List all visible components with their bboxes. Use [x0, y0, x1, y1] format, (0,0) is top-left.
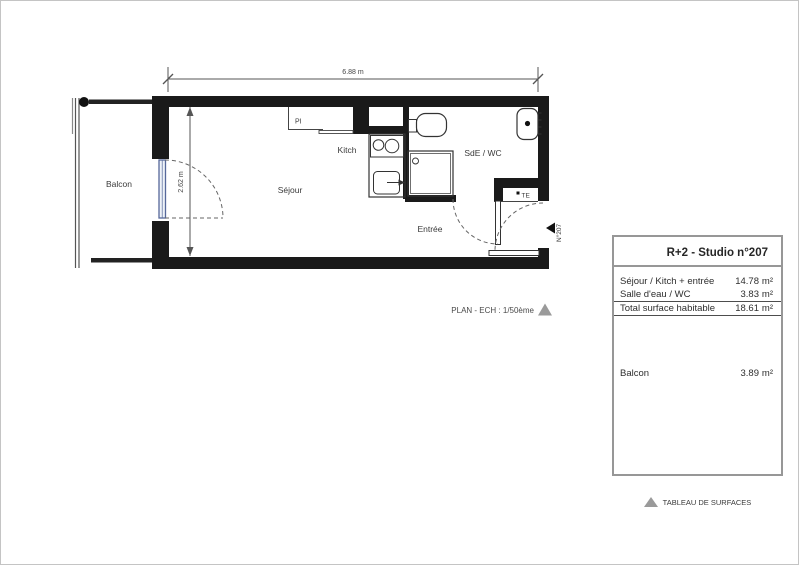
burner-small	[373, 140, 384, 151]
wall-left-upper	[152, 96, 169, 159]
wall-shaft-stub	[353, 107, 369, 134]
row-value: 18.61	[735, 303, 759, 314]
table-row-balcony: Balcon 3.89 m²	[614, 367, 781, 380]
wall-bottom	[152, 257, 549, 269]
row-unit: m²	[759, 276, 773, 287]
room-label-entree: Entrée	[417, 224, 442, 234]
room-label-sde-wc: SdE / WC	[464, 148, 501, 158]
entrance-door-swing-arc	[495, 203, 543, 251]
row-label: Total surface habitable	[620, 303, 735, 314]
row-unit: m²	[759, 289, 773, 300]
row-value: 3.89	[741, 368, 760, 379]
room-label-kitch: Kitch	[338, 145, 357, 155]
sde-door-swing-arc	[453, 199, 498, 244]
dim-width-label: 6.88 m	[342, 69, 364, 76]
sde-door-leaf	[496, 201, 501, 245]
page: 6.88 m 2.62 m PI	[0, 0, 799, 565]
table-rule-below-total	[614, 315, 781, 316]
dim-arrow-down	[187, 247, 194, 256]
te-label: TE	[522, 193, 531, 200]
balcony-rail-bottom	[91, 258, 152, 263]
washbasin-drain	[525, 121, 530, 126]
table-row: Séjour / Kitch + entrée 14.78 m²	[614, 275, 781, 288]
te-marker	[517, 192, 520, 195]
table-caption-triangle-icon	[644, 497, 658, 507]
kitchen-unit	[369, 134, 405, 197]
surface-table: R+2 - Studio n°207 Séjour / Kitch + entr…	[612, 235, 783, 476]
row-label: Balcon	[620, 368, 741, 379]
surface-table-title: R+2 - Studio n°207	[614, 237, 781, 267]
table-row-total: Total surface habitable 18.61 m²	[614, 302, 781, 315]
surface-table-rows: Séjour / Kitch + entrée 14.78 m² Salle d…	[614, 267, 781, 380]
plan-scale-caption: PLAN - ECH : 1/50ème	[451, 306, 534, 315]
surface-table-caption: TABLEAU DE SURFACES	[612, 497, 783, 507]
plan-caption-triangle-icon	[538, 304, 552, 316]
table-row: Salle d'eau / WC 3.83 m²	[614, 288, 781, 301]
row-value: 3.83	[741, 289, 760, 300]
entrance-arrow-icon	[546, 223, 555, 234]
room-label-balcon: Balcon	[106, 179, 132, 189]
pi-sliding-door	[319, 131, 353, 134]
wall-right-corner	[538, 248, 549, 269]
row-value: 14.78	[735, 276, 759, 287]
window-swing-arc	[165, 160, 223, 218]
balcony-post	[79, 97, 89, 107]
balcony-window	[159, 160, 223, 218]
shower-drain	[413, 158, 419, 164]
doors	[453, 199, 543, 256]
wall-shaft-bottom	[369, 126, 403, 134]
entrance-door-leaf	[489, 251, 539, 256]
dimension-height	[187, 107, 194, 256]
pi-label: PI	[295, 119, 302, 126]
table-caption-text: TABLEAU DE SURFACES	[663, 498, 752, 507]
room-label-sejour: Séjour	[278, 185, 303, 195]
unit-number-label: N°207	[555, 223, 563, 242]
wall-top	[152, 96, 549, 107]
row-unit: m²	[759, 368, 773, 379]
burner-large	[385, 139, 399, 153]
toilet-bowl	[417, 114, 447, 137]
row-unit: m²	[759, 303, 773, 314]
entrance-marker: N°207	[546, 223, 563, 243]
walls	[152, 96, 549, 269]
toilet-cistern	[409, 120, 417, 133]
row-label: Séjour / Kitch + entrée	[620, 276, 735, 287]
balcony-rail-top	[89, 100, 152, 105]
wall-te-niche-stub	[494, 178, 503, 201]
row-label: Salle d'eau / WC	[620, 289, 741, 300]
dim-height-label: 2.62 m	[178, 171, 185, 193]
dim-arrow-up	[187, 107, 194, 116]
wall-right-upper	[538, 96, 549, 201]
shower-tray-inner	[411, 154, 451, 194]
